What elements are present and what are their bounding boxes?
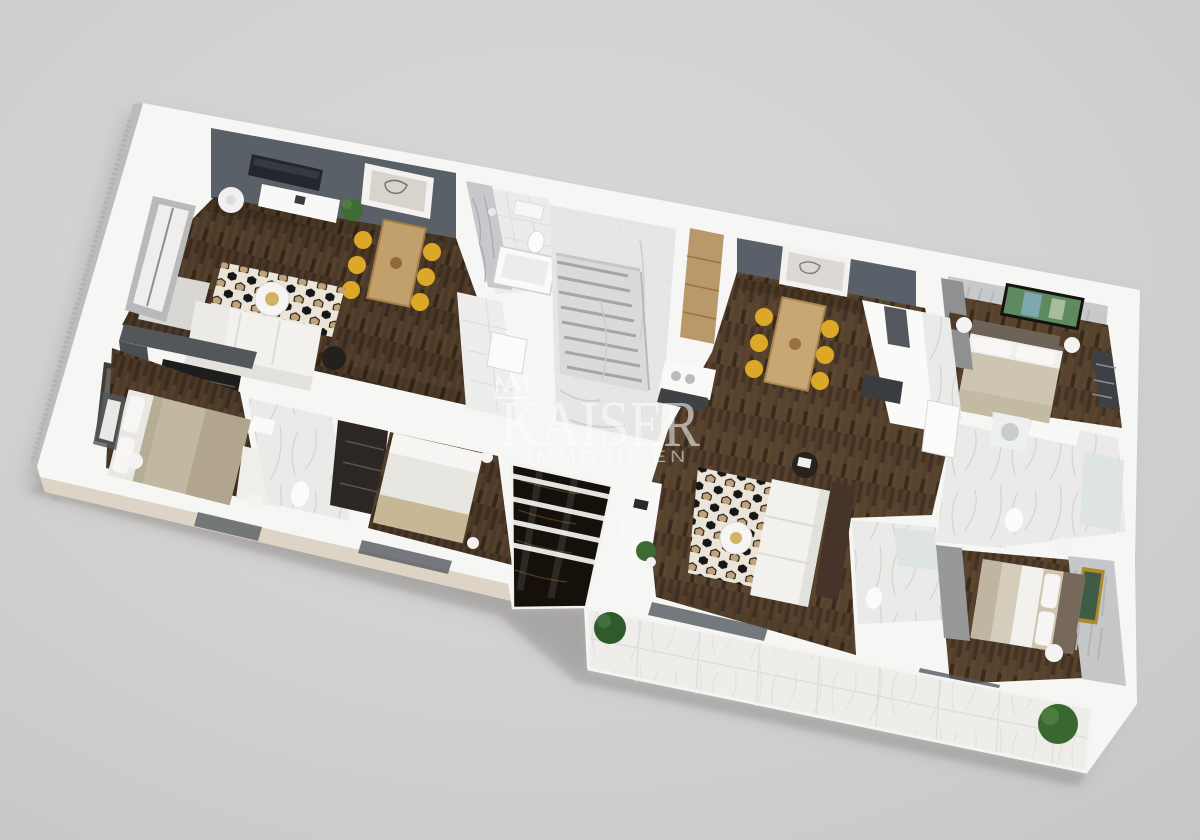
svg-text:IMMOBILIEN: IMMOBILIEN: [527, 447, 689, 466]
